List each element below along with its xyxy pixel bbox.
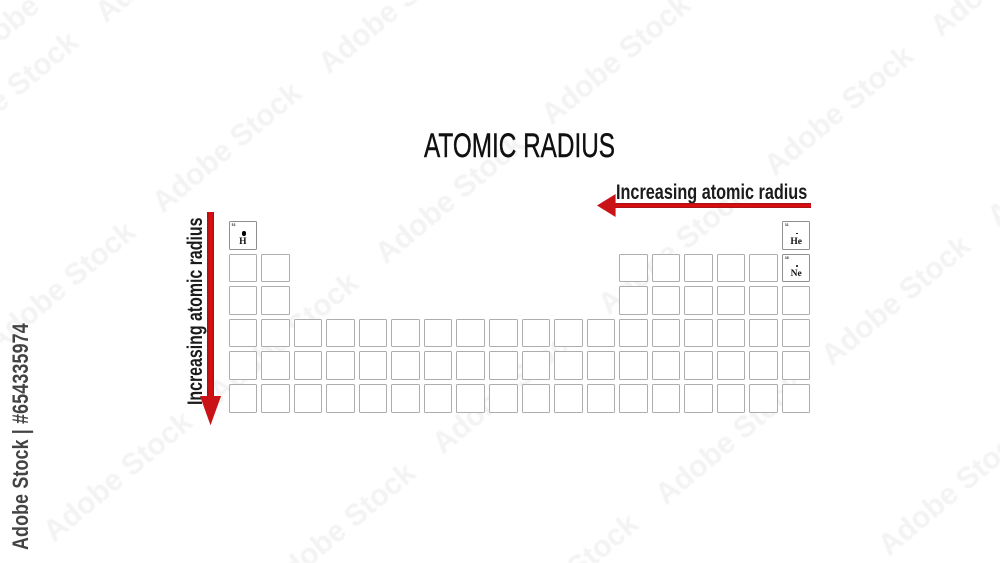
svg-text:Adobe Stock: Adobe Stock	[260, 456, 422, 563]
svg-text:Adobe Stock: Adobe Stock	[981, 90, 1000, 233]
svg-text:Adobe Stock: Adobe Stock	[758, 39, 920, 182]
svg-text:Adobe Stock: Adobe Stock	[312, 0, 474, 80]
svg-text:Adobe Stock: Adobe Stock	[535, 0, 697, 131]
svg-text:Adobe Stock: Adobe Stock	[89, 0, 251, 29]
svg-text:Adobe Stock: Adobe Stock	[872, 419, 1000, 562]
svg-text:Adobe Stock: Adobe Stock	[37, 405, 199, 548]
svg-text:Adobe Stock: Adobe Stock	[146, 76, 308, 219]
svg-text:Adobe Stock: Adobe Stock	[815, 229, 977, 372]
svg-text:Adobe Stock: Adobe Stock	[0, 25, 85, 168]
svg-text:Adobe Stock: Adobe Stock	[924, 0, 1000, 43]
svg-text:Adobe Stock: Adobe Stock	[483, 507, 645, 563]
